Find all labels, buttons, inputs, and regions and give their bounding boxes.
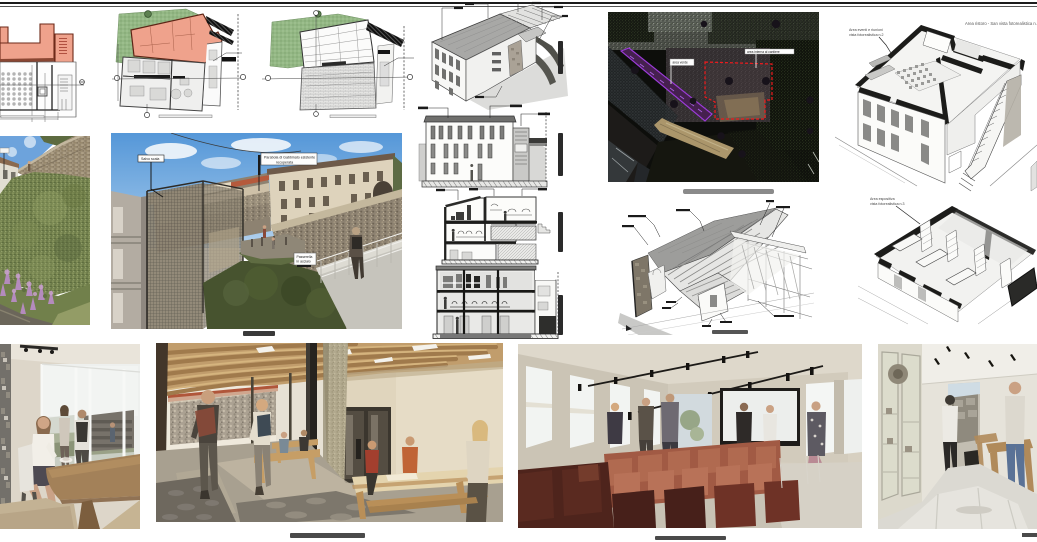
svg-text:recuperata: recuperata [276,161,293,165]
svg-text:Area espositiva: Area espositiva [870,197,895,201]
svg-text:area verde: area verde [673,61,688,65]
svg-text:Area eventi e riunioni: Area eventi e riunioni [849,28,883,32]
svg-text:vista fotorealistica n.2: vista fotorealistica n.2 [849,33,884,37]
svg-text:Passerella: Passerella [297,255,313,259]
svg-text:Area ristoro - San vista fotor: Area ristoro - San vista fotorealistica … [965,21,1037,26]
svg-text:Parabola di Gabbinato esistent: Parabola di Gabbinato esistente [264,156,315,160]
svg-text:area interna al cantiere: area interna al cantiere [747,50,780,54]
svg-text:vista fotorealistica n.3: vista fotorealistica n.3 [870,202,905,206]
svg-text:Salvo scala: Salvo scala [141,157,159,161]
svg-text:in acciaio: in acciaio [297,260,311,264]
